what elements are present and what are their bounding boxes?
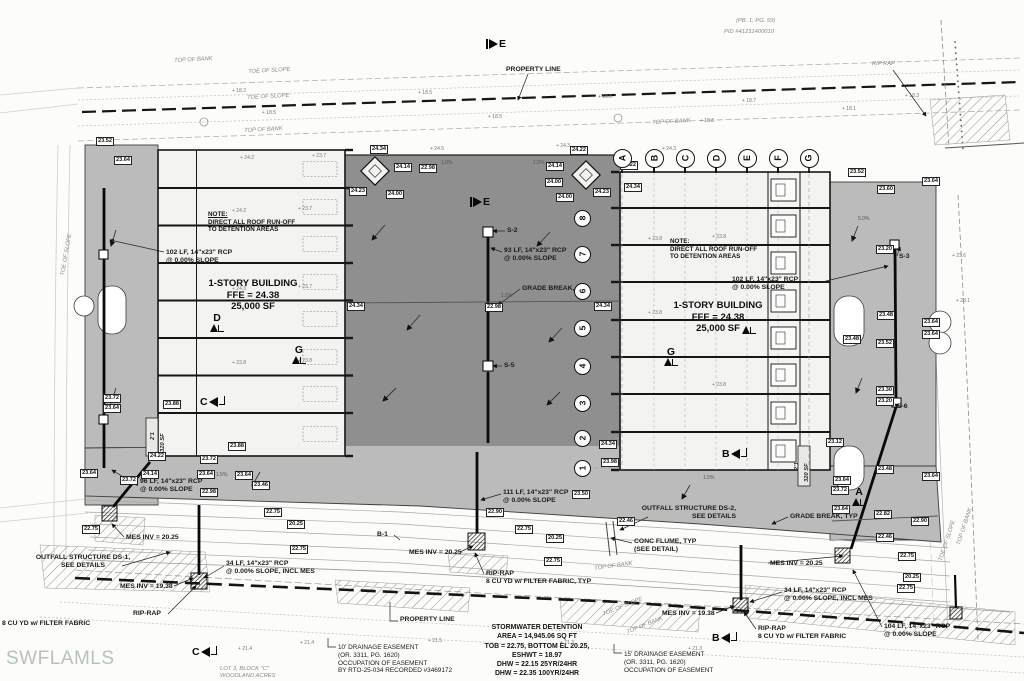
spot-elevation: + 18.8 <box>700 118 714 124</box>
terrain-label: TOE OF SLOPE <box>602 596 644 618</box>
right-building-title: 1-STORY BUILDING FFE = 24.38 25,000 SF <box>648 300 788 335</box>
elevation-box: 24.22 <box>148 452 166 461</box>
spot-elevation: + 18.2 <box>232 88 246 94</box>
grid-bubble: B <box>645 149 664 168</box>
elevation-box: 22.90 <box>486 508 504 517</box>
spot-elevation: + 24.3 <box>556 143 570 149</box>
terrain-label: TOP OF BANK <box>626 616 664 637</box>
terrain-label: TOE OF SLOPE <box>938 520 958 562</box>
annotation: MES INV = 20.25 <box>126 534 179 542</box>
elevation-box: 23.60 <box>877 185 895 194</box>
elevation-box: 24.34 <box>594 302 612 311</box>
grid-bubble: 8 <box>574 210 591 227</box>
spot-elevation: + 21.5 <box>428 638 442 644</box>
spot-elevation: + 18.5 <box>418 90 432 96</box>
spot-elevation: + 23.7 <box>298 206 312 212</box>
section-marker: C <box>200 396 225 408</box>
spot-elevation: + 24.5 <box>430 146 444 152</box>
elevation-box: 23.98 <box>601 458 619 467</box>
annotation: GRADE BREAK, TYP <box>790 513 858 521</box>
spot-elevation: + 18.3 <box>905 93 919 99</box>
annotation: 104 LF, 14"x23" RCP@ 0.00% SLOPE <box>884 623 950 640</box>
elevation-box: 24.34 <box>624 183 642 192</box>
elevation-box: 23.72 <box>831 486 849 495</box>
spot-elevation: + 24.2 <box>232 208 246 214</box>
annotation: 96 LF, 14"x23" RCP@ 0.00% SLOPE <box>140 478 202 495</box>
spot-elevation: + 23.8 <box>648 236 662 242</box>
spot-elevation: + 18.1 <box>842 106 856 112</box>
elevation-box: 23.72 <box>103 394 121 403</box>
annotation: 102 LF, 14"x23" RCP@ 0.00% SLOPE <box>732 276 798 293</box>
spot-elevation: + 21.4 <box>300 640 314 646</box>
annotation: PROPERTY LINE <box>400 616 455 624</box>
elevation-box: 23.88 <box>228 442 246 451</box>
section-marker <box>742 326 756 334</box>
annotation: RIP-RAP8 CU YD w/ FILTER FABRIC <box>758 625 846 642</box>
annotation: MES INV = 20.25 <box>409 549 462 557</box>
slope-label: 1.0% <box>441 160 452 166</box>
terrain-label: TOP OF BANK <box>956 507 975 546</box>
elevation-box: 22.98 <box>485 303 503 312</box>
elevation-box: 20.25 <box>287 520 305 529</box>
spot-elevation: + 18.6 <box>598 94 612 100</box>
elevation-box: 24.22 <box>570 146 588 155</box>
terrain-label: PID #41231400010 <box>724 29 774 36</box>
elevation-box: 23.20 <box>876 397 894 406</box>
spot-elevation: + 21.4 <box>238 646 252 652</box>
elevation-box: 22.46 <box>876 533 894 542</box>
elevation-box: 22.75 <box>82 525 100 534</box>
spot-elevation: + 23.8 <box>648 310 662 316</box>
spot-elevation: + 23.7 <box>312 153 326 159</box>
elevation-box: 23.52 <box>96 137 114 146</box>
elevation-box: 24.23 <box>349 187 367 196</box>
left-building-note: NOTE: DIRECT ALL ROOF RUN-OFF TO DETENTI… <box>208 211 295 234</box>
elevation-box: 23.88 <box>163 400 181 409</box>
spot-elevation: + 18.5 <box>262 110 276 116</box>
slope-label: 1.5% <box>501 293 512 299</box>
grid-bubble: 1 <box>574 460 591 477</box>
grid-bubble: F <box>769 149 788 168</box>
elevation-box: 23.64 <box>833 476 851 485</box>
terrain-label: TOP OF BANK <box>594 561 633 573</box>
annotation: B-1 <box>377 531 388 539</box>
slope-label: 1.5% <box>703 475 714 481</box>
annotation: S-6 <box>897 403 908 411</box>
elevation-box: 22.98 <box>419 164 437 173</box>
elevation-box: 24.14 <box>546 162 564 171</box>
annotation: 8 CU YD w/ FILTER FABRIC <box>2 620 90 628</box>
labels-layer: NOTE: DIRECT ALL ROOF RUN-OFF TO DETENTI… <box>0 0 1024 681</box>
annotation: OUTFALL STRUCTURE DS-1,SEE DETAILS <box>28 554 138 571</box>
elevation-box: 23.64 <box>197 470 215 479</box>
spot-elevation: + 24.3 <box>232 286 246 292</box>
elevation-box: 24.34 <box>599 440 617 449</box>
spot-elevation: + 24.2 <box>240 155 254 161</box>
terrain-label: RIP RAP <box>872 61 895 68</box>
section-marker: G <box>664 346 678 366</box>
grid-bubble: 6 <box>574 283 591 300</box>
elevation-box: 24.34 <box>370 145 388 154</box>
annotation: RIP-RAP8 CU YD w/ FILTER FABRIC, TYP <box>486 570 591 587</box>
elevation-box: 24.00 <box>545 178 563 187</box>
annotation: MES INV = 20.25 <box>770 560 823 568</box>
annotation: MES INV = 19.38 <box>120 583 173 591</box>
annotation: PROPERTY LINE <box>506 66 561 74</box>
annotation: S-3 <box>899 253 910 261</box>
elevation-box: 23.64 <box>235 471 253 480</box>
slope-label: 1.0% <box>533 160 544 166</box>
spot-elevation: + 21.3 <box>688 646 702 652</box>
elevation-box: 22.75 <box>290 545 308 554</box>
elevation-box: 23.50 <box>572 490 590 499</box>
grid-bubble: 7 <box>574 246 591 263</box>
elevation-box: 24.00 <box>386 190 404 199</box>
elevation-box: 22.90 <box>911 517 929 526</box>
elevation-box: 22.98 <box>200 488 218 497</box>
grid-bubble: 2 <box>574 430 591 447</box>
annotation: 102 LF, 14"x23" RCP@ 0.00% SLOPE <box>166 249 232 266</box>
spot-elevation: + 21.3 <box>560 640 574 646</box>
elevation-box: 24.34 <box>347 302 365 311</box>
grid-bubble: G <box>800 149 819 168</box>
elevation-box: 23.72 <box>120 476 138 485</box>
annotation: 34 LF, 14"x23" RCP@ 0.00% SLOPE, INCL ME… <box>784 587 873 604</box>
elevation-box: 24.14 <box>141 470 159 479</box>
elevation-box: 24.00 <box>556 193 574 202</box>
grid-bubble: C <box>676 149 695 168</box>
annotation: S-2 <box>507 227 518 235</box>
annotation: 93 LF, 14"x23" RCP@ 0.00% SLOPE <box>504 247 566 264</box>
grid-bubble: A <box>613 149 632 168</box>
terrain-label: TOE OF SLOPE <box>247 93 290 102</box>
terrain-label: (PB. 1, PG. 59) <box>736 18 775 25</box>
section-marker: B <box>722 448 747 460</box>
annotation: 34 LF, 14"x23" RCP@ 0.00% SLOPE, INCL ME… <box>226 560 315 577</box>
section-marker: C <box>192 646 217 658</box>
spot-elevation: + 18.7 <box>742 98 756 104</box>
annotation: 111 LF, 14"x23" RCP@ 0.00% SLOPE <box>503 489 568 506</box>
terrain-label: TOP OF BANK <box>652 118 691 127</box>
terrain-label: TOP OF BANK <box>244 126 283 135</box>
elevation-box: 23.20 <box>876 245 894 254</box>
elevation-box: 24.14 <box>394 163 412 172</box>
elevation-box: 23.64 <box>80 469 98 478</box>
spot-elevation: + 23.1 <box>956 298 970 304</box>
elevation-box: 23.64 <box>922 177 940 186</box>
elevation-box: 22.75 <box>898 552 916 561</box>
elevation-box: 22.75 <box>544 557 562 566</box>
slope-label: 1.5% <box>216 472 227 478</box>
grid-bubble: 5 <box>574 320 591 337</box>
section-marker: D <box>210 312 224 332</box>
grid-bubble: 3 <box>574 395 591 412</box>
spot-elevation: + 23.8 <box>232 360 246 366</box>
grid-bubble: D <box>707 149 726 168</box>
spot-elevation: + 24.3 <box>662 146 676 152</box>
grid-bubble: 4 <box>574 358 591 375</box>
elevation-box: 23.12 <box>826 438 844 447</box>
spot-elevation: + 23.8 <box>712 382 726 388</box>
elevation-box: 22.75 <box>515 525 533 534</box>
site-plan-canvas: NOTE: DIRECT ALL ROOF RUN-OFF TO DETENTI… <box>0 0 1024 681</box>
elevation-box: 23.64 <box>103 404 121 413</box>
elevation-box: 22.82 <box>874 510 892 519</box>
elevation-box: 23.64 <box>922 330 940 339</box>
terrain-label: 2'1 <box>150 432 157 440</box>
mls-watermark: SWFLAMLS <box>6 648 115 670</box>
annotation: S-5 <box>504 362 515 370</box>
spot-elevation: + 23.6 <box>952 253 966 259</box>
elevation-box: 20.25 <box>546 534 564 543</box>
elevation-box: 23.64 <box>922 472 940 481</box>
elevation-box: 22.75 <box>264 508 282 517</box>
elevation-box: 23.48 <box>843 335 861 344</box>
right-building-note: NOTE: DIRECT ALL ROOF RUN-OFF TO DETENTI… <box>670 238 757 261</box>
stormwater-detention-note: STORMWATER DETENTION AREA = 14,945.06 SQ… <box>452 623 622 679</box>
spot-elevation: + 23.7 <box>298 284 312 290</box>
elevation-box: 23.64 <box>832 505 850 514</box>
spot-elevation: + 23.8 <box>712 234 726 240</box>
elevation-box: 23.52 <box>848 168 866 177</box>
annotation: 10' DRAINAGE EASEMENT(OR. 3311, PG. 1620… <box>338 644 452 675</box>
elevation-box: 23.48 <box>877 311 895 320</box>
elevation-box: 23.30 <box>876 386 894 395</box>
terrain-label: LOT 3, BLOCK "C"WOODLAND ACRES <box>220 666 276 680</box>
elevation-box: 23.64 <box>922 318 940 327</box>
elevation-box: 23.46 <box>252 481 270 490</box>
terrain-label: TOP OF BANK <box>174 56 213 65</box>
elevation-box: 20.25 <box>903 573 921 582</box>
annotation: RIP-RAP <box>133 610 161 618</box>
section-marker: A <box>852 486 866 506</box>
section-marker: E <box>486 38 506 50</box>
elevation-box: 22.46 <box>617 517 635 526</box>
elevation-box: 23.64 <box>114 156 132 165</box>
terrain-label: 2'1 <box>794 462 801 470</box>
annotation: CONC FLUME, TYP(SEE DETAIL) <box>634 538 696 555</box>
elevation-box: 23.72 <box>200 455 218 464</box>
section-marker: B <box>712 632 737 644</box>
annotation: MES INV = 19.38 <box>662 610 715 618</box>
elevation-box: 23.48 <box>876 465 894 474</box>
elevation-box: 24.23 <box>593 188 611 197</box>
section-marker: G <box>292 344 306 364</box>
elevation-box: 22.75 <box>897 584 915 593</box>
section-marker: E <box>470 196 490 208</box>
terrain-label: 320 SF <box>160 433 167 452</box>
terrain-label: TOE OF SLOPE <box>248 67 291 76</box>
spot-elevation: + 18.5 <box>488 114 502 120</box>
terrain-label: 320 SF <box>804 463 811 482</box>
annotation: 15' DRAINAGE EASEMENT(OR. 3311, PG. 1620… <box>624 651 713 674</box>
terrain-label: TOE OF SLOPE <box>60 233 74 276</box>
elevation-box: 23.52 <box>876 339 894 348</box>
grid-bubble: E <box>738 149 757 168</box>
slope-label: 5.0% <box>858 216 869 222</box>
